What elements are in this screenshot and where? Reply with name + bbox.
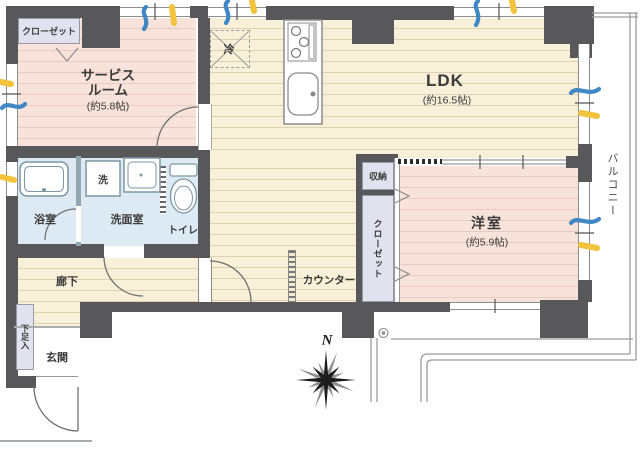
ldk-door-opening — [198, 258, 212, 302]
wall-top-mid3 — [394, 6, 454, 20]
wall-top-mid2 — [266, 6, 352, 20]
wall-washroom-bottom-2 — [144, 244, 210, 258]
wall-storage-top — [356, 154, 398, 162]
wall-partition-nub — [566, 156, 590, 168]
entrance-door-arc — [34, 387, 78, 431]
wall-bottom-main — [112, 302, 342, 312]
washroom-floor — [81, 158, 160, 246]
compass-star — [287, 341, 365, 419]
western-room-size: (約5.9帖) — [466, 235, 509, 250]
window-bottom-western — [450, 302, 540, 310]
drain-pipe — [379, 329, 388, 338]
washroom-door-opening — [104, 246, 144, 258]
open-wall-dotted — [398, 159, 442, 164]
wall-entrance-block — [80, 302, 112, 338]
wall-washroom-bottom-1 — [6, 244, 104, 258]
wall-top-mid1 — [190, 6, 208, 18]
window-left-bath — [6, 162, 18, 196]
washroom-label: 洗面室 — [111, 211, 144, 227]
wall-right-2 — [578, 280, 592, 302]
pillar-bottom-right — [540, 300, 588, 338]
window-right-ldk — [578, 44, 590, 144]
wall-left-1 — [6, 6, 18, 64]
shoe-cabinet-label: 下足入 — [19, 324, 31, 350]
corridor-label: 廊下 — [56, 273, 78, 289]
entrance-door-opening — [36, 376, 78, 389]
bathroom-label: 浴室 — [34, 211, 56, 227]
corridor-floor — [14, 258, 198, 302]
ground-line — [0, 440, 92, 442]
ldk-label: LDK — [426, 71, 464, 91]
floor-plan: クローゼット サービス ルーム (約5.8帖) 冷 LDK (約16.5帖) バ… — [0, 0, 640, 464]
western-room-label: 洋室 — [471, 213, 503, 233]
wall-service-bottom — [6, 146, 198, 158]
bathroom-divider-door — [76, 206, 81, 242]
counter-edge — [288, 250, 296, 302]
storage-label: 収納 — [369, 170, 387, 183]
wall-bottom-left-corner — [6, 376, 36, 388]
toilet-folding-door — [160, 166, 166, 214]
service-room-door-opening — [198, 104, 212, 150]
pillar-top-right — [544, 6, 594, 44]
wall-service-ldk-1 — [198, 18, 210, 104]
toilet-label: トイレ — [168, 222, 198, 237]
window-top-2 — [208, 7, 266, 17]
entrance-label: 玄関 — [46, 349, 68, 365]
closet-top-label: クローゼット — [22, 25, 76, 38]
wall-western-bottom — [374, 302, 450, 312]
closet-vertical-label: クローゼット — [372, 219, 385, 279]
refrigerator-label: 冷 — [224, 41, 235, 57]
compass-north-label: N — [322, 333, 333, 350]
balcony-label: バルコニー — [604, 153, 620, 218]
pillar-top-2 — [352, 6, 394, 44]
ldk-size: (約16.5帖) — [423, 93, 471, 108]
washer-label: 洗 — [98, 172, 108, 187]
service-room-size: (約5.8帖) — [87, 99, 130, 114]
closet-door-track — [394, 158, 400, 302]
window-top-3 — [454, 7, 544, 17]
service-room-label-2: ルーム — [88, 79, 128, 99]
window-right-western — [578, 182, 590, 280]
bathroom-floor — [14, 158, 76, 246]
pillar-top-1 — [82, 6, 120, 48]
window-left-service — [6, 64, 18, 146]
window-top-1 — [120, 7, 190, 17]
pillar-bottom-mid — [342, 302, 374, 338]
wall-service-ldk-2 — [198, 150, 210, 258]
counter-label: カウンター — [303, 273, 356, 288]
